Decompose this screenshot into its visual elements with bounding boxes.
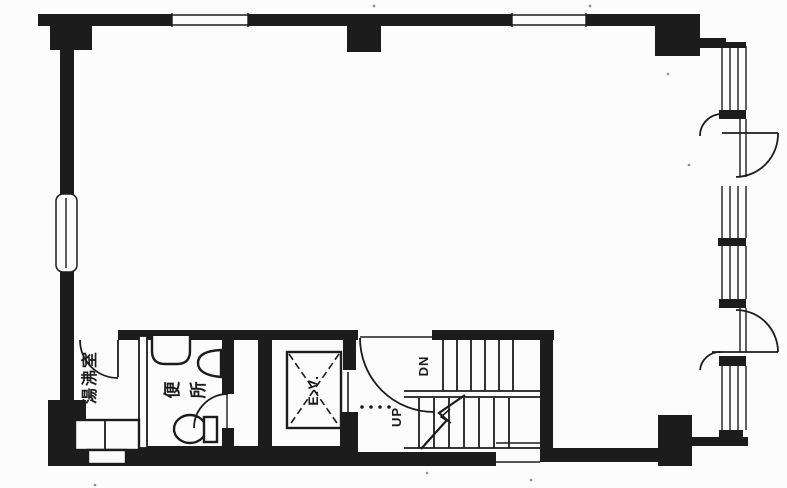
window-top-left [172,11,248,29]
washbasin [152,336,190,364]
window-left-wall [56,194,77,272]
dn-label: DN [416,356,431,377]
kitchenette-label: 湯沸室 [80,350,99,404]
mullion [719,356,746,366]
wc-toilet-bowl [174,415,206,443]
mullion [718,238,746,246]
mullion [719,430,743,446]
elevator-shaft-right-wall [343,336,356,370]
column-top-right [655,14,700,56]
toilet-label-char-1: 便 [162,381,182,399]
elevator-shaft: E.V. [287,352,348,428]
sink-unit [88,450,126,464]
stair-right-wall [540,330,553,462]
elevator-shaft-left-wall [258,336,272,462]
column-bottom-right [658,415,692,466]
mullion [719,299,746,308]
floor-plan-drawing: 湯沸室 便 所 E.V. [0,0,787,488]
column-top-center [347,14,381,52]
up-label: UP [389,407,404,427]
elevator-label: E.V. [305,374,321,405]
floor-plan-page: 湯沸室 便 所 E.V. [0,0,787,488]
mullion [719,110,746,119]
toilet-label-char-2: 所 [189,382,208,399]
toilet-right-wall [222,336,234,394]
wc-toilet-tank [204,417,217,442]
window-top-right [512,11,586,29]
